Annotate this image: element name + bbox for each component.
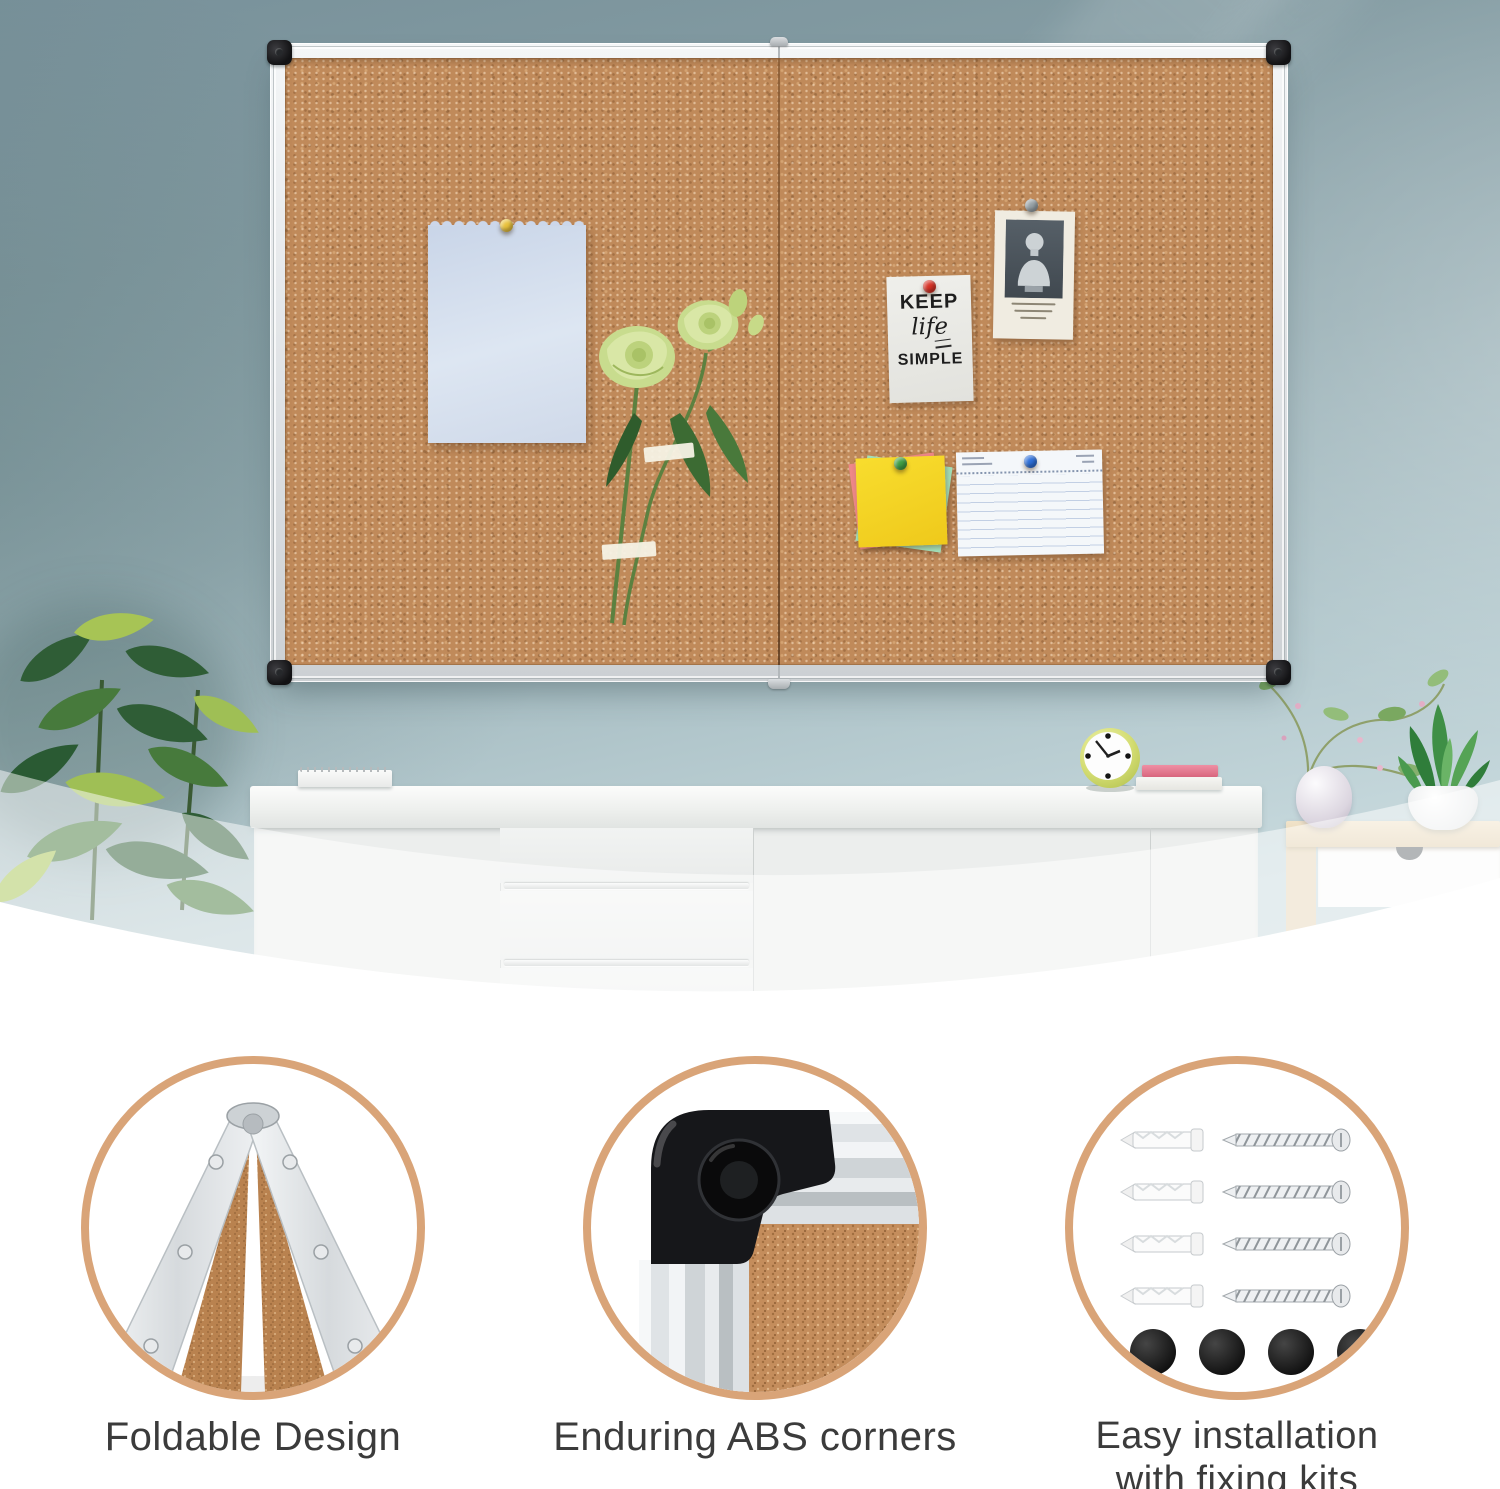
- cabinet-seam: [1150, 828, 1151, 1068]
- handwriting-line: [1020, 317, 1046, 319]
- caption-fixing-kits: Easy installation with fixing kits: [987, 1414, 1487, 1489]
- cork-bulletin-board: KEEP life SIMPLE: [270, 43, 1288, 682]
- flower-head: [599, 326, 675, 388]
- note-scribble: [935, 339, 952, 349]
- drawer-handle: [504, 960, 749, 966]
- caption-foldable-design: Foldable Design: [3, 1414, 503, 1460]
- feature-foldable-design: [81, 1056, 425, 1400]
- feature-abs-corners: [583, 1056, 927, 1400]
- book: [1136, 777, 1222, 790]
- keep-life-simple-note: KEEP life SIMPLE: [886, 275, 973, 403]
- pushpin-green: [894, 457, 907, 470]
- drawer-front: [500, 968, 753, 1068]
- abs-corner-piece: [267, 660, 292, 685]
- ficus-plant: [0, 540, 272, 920]
- handwriting-line: [1082, 461, 1094, 463]
- feature-fixing-kits: [1065, 1056, 1409, 1400]
- drawer-front: [500, 891, 753, 960]
- statue-photo: [1005, 220, 1064, 299]
- pushpin-yellow: [500, 219, 513, 232]
- drawer-front: [500, 828, 753, 883]
- folded-board-icon: [89, 1064, 417, 1392]
- abs-corner-piece: [1266, 660, 1291, 685]
- leaf-cluster: [0, 608, 264, 920]
- handwriting-line: [962, 463, 992, 466]
- alarm-clock: [1078, 726, 1142, 792]
- caption-fixing-kits-line2: with fixing kits: [987, 1458, 1487, 1489]
- caption-abs-corners: Enduring ABS corners: [505, 1414, 1005, 1460]
- handwriting-line: [1014, 310, 1052, 313]
- note-line-2: life: [911, 315, 948, 340]
- wall-anchors: [1121, 1129, 1203, 1307]
- vase: [1296, 766, 1352, 828]
- note-line-3: SIMPLE: [898, 350, 964, 370]
- pushpin-gray: [1025, 199, 1038, 212]
- succulent-plant: [1392, 690, 1492, 800]
- sideboard-body: [254, 828, 1258, 1068]
- vertical-rail: [639, 1260, 749, 1392]
- cabinet-seam: [753, 828, 754, 1068]
- cork-detail: [749, 1224, 919, 1392]
- sideboard-drawers: [500, 828, 753, 1068]
- statue-photo-card: [993, 210, 1075, 339]
- abs-corner-piece: [1266, 40, 1291, 65]
- handwriting-line: [962, 457, 984, 459]
- sideboard-top: [250, 786, 1262, 828]
- abs-corner-icon: [591, 1064, 919, 1392]
- abs-corner-piece: [267, 40, 292, 65]
- screw-caps: [1130, 1329, 1383, 1375]
- handwriting-line: [1011, 303, 1055, 306]
- caption-fixing-kits-line1: Easy installation: [987, 1414, 1487, 1458]
- spiral-notebook: [298, 770, 392, 787]
- note-line-1: KEEP: [900, 291, 959, 313]
- book: [1142, 765, 1218, 777]
- pushpin-red: [923, 280, 936, 293]
- handwriting-line: [1076, 455, 1094, 457]
- screws: [1223, 1129, 1350, 1307]
- hinge-knuckle: [768, 679, 790, 689]
- ruled-lines: [956, 473, 1104, 556]
- side-table-leg: [1286, 847, 1316, 997]
- tape-strip: [602, 541, 657, 560]
- product-image: KEEP life SIMPLE: [0, 0, 1500, 1489]
- hinge-knuckle: [770, 37, 788, 46]
- pushpin-blue: [1024, 455, 1037, 468]
- drawer-handle: [504, 883, 749, 889]
- taped-flowers: [560, 285, 790, 630]
- fixing-kit-icon: [1073, 1064, 1401, 1392]
